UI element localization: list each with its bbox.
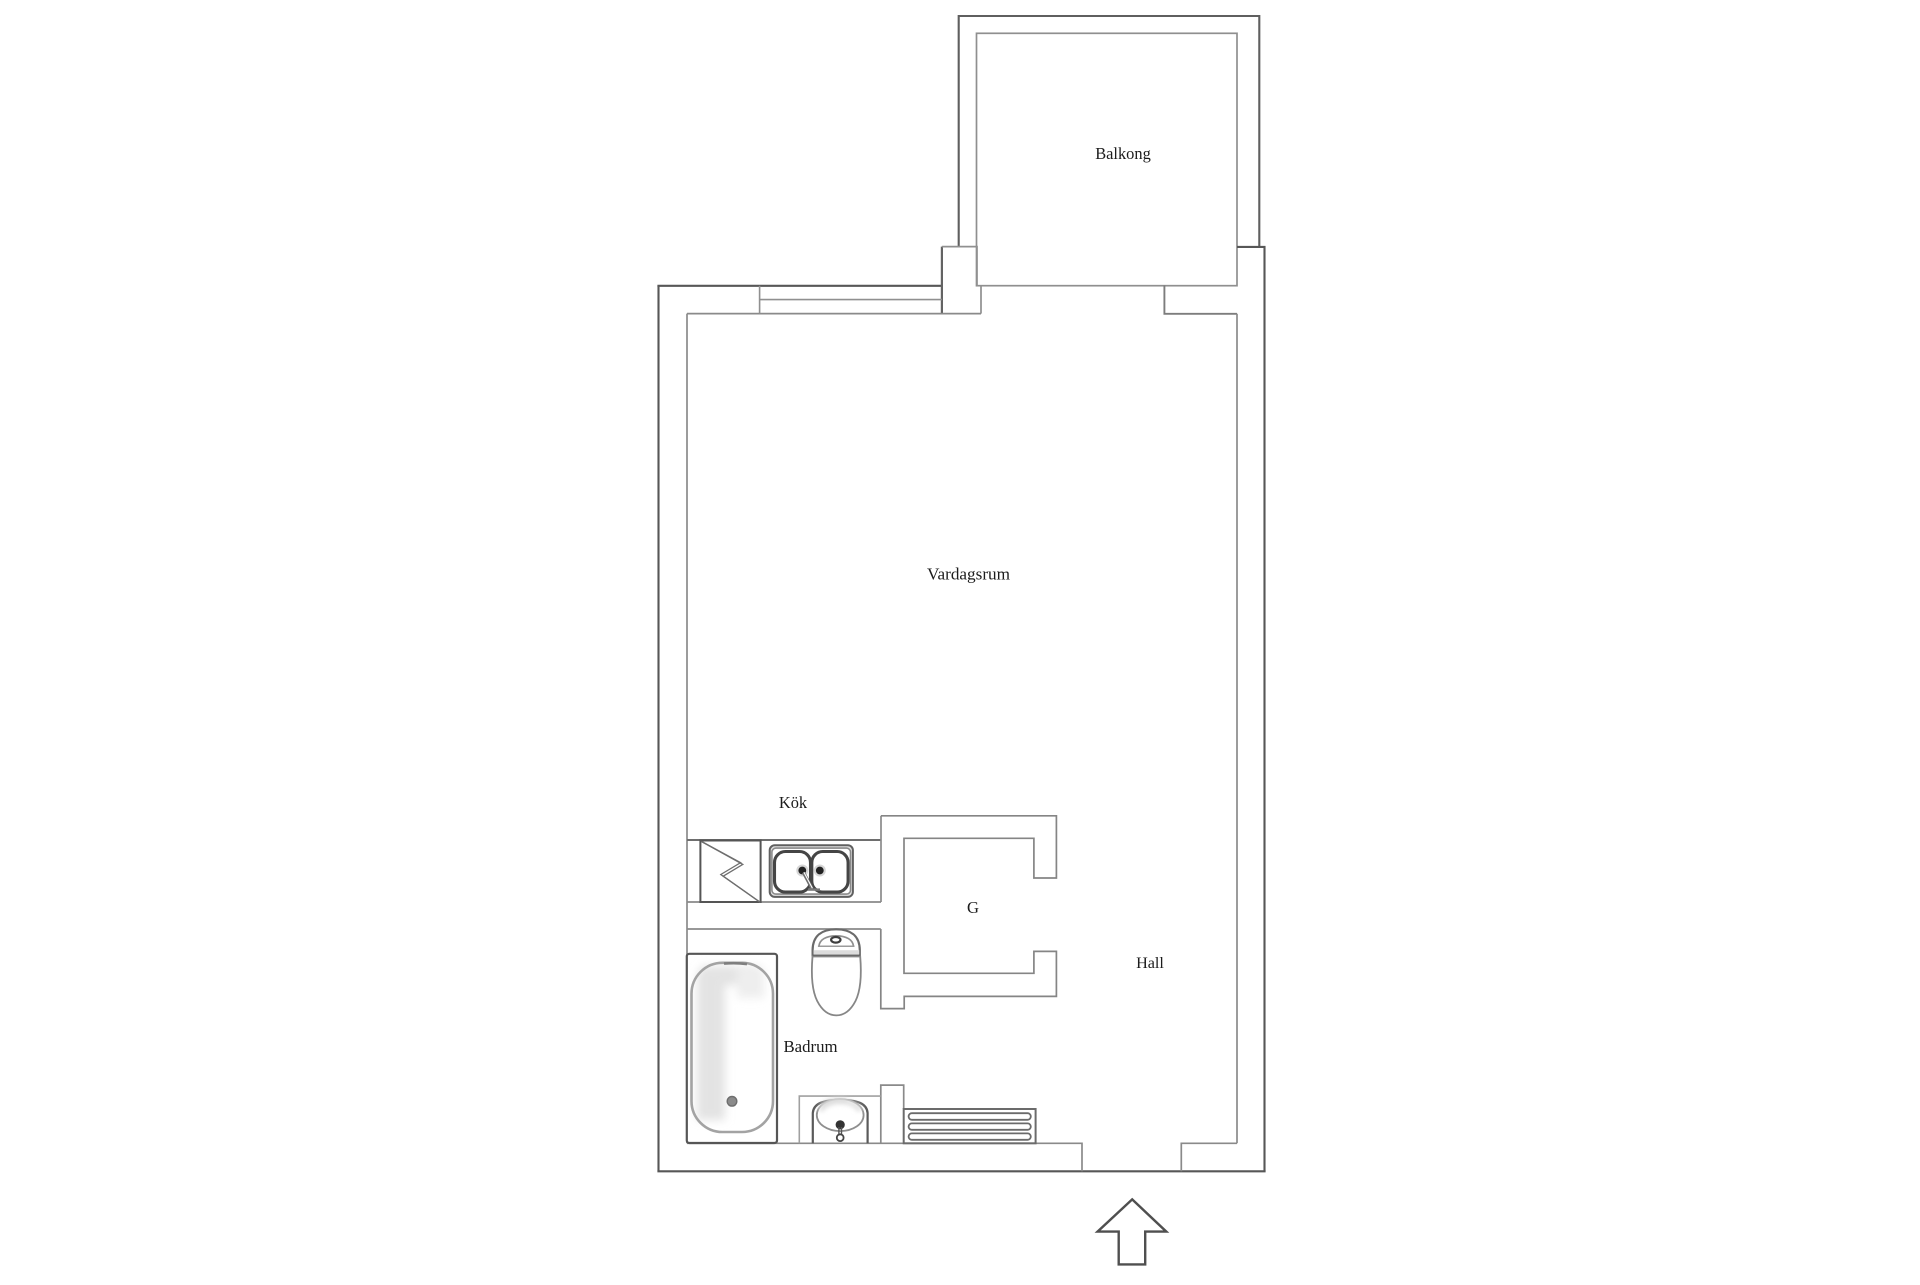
svg-text:Balkong: Balkong [1095, 144, 1151, 163]
svg-text:G: G [967, 898, 979, 917]
svg-text:Hall: Hall [1136, 954, 1164, 972]
svg-text:Badrum: Badrum [783, 1037, 837, 1056]
svg-text:Vardagsrum: Vardagsrum [927, 565, 1011, 584]
svg-text:Kök: Kök [779, 793, 808, 812]
